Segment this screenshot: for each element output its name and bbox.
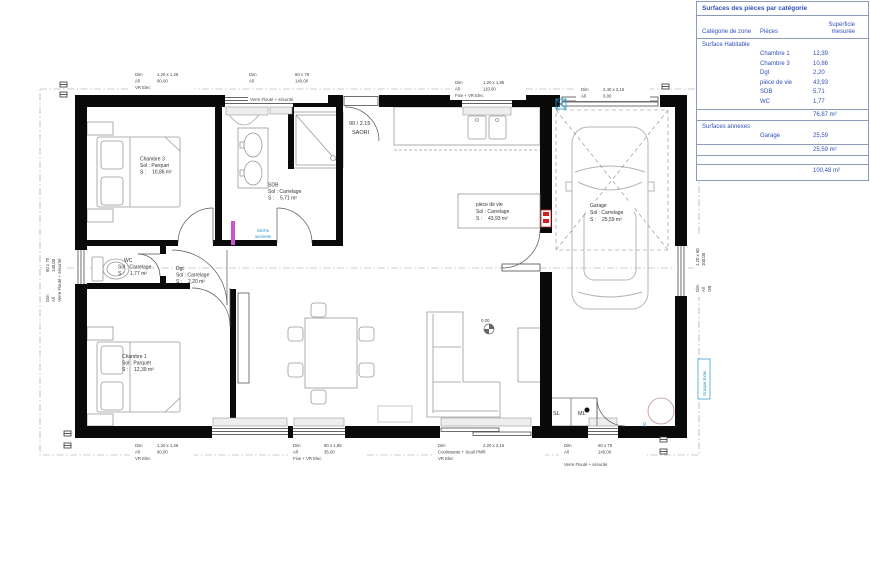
door-chambre1 xyxy=(192,288,230,326)
ann-t2-all: All xyxy=(249,79,254,84)
ann-b4-dimv: 60 x 75 xyxy=(598,443,613,448)
ann-b3-note: Coulissante + Seuil PMR xyxy=(438,450,486,455)
table-row: Chambre 112,39 xyxy=(697,50,868,60)
row-value: 1,77 xyxy=(810,98,868,108)
room-garage-floor: Sol : Carrelage xyxy=(590,210,624,216)
surface-table-header: Catégorie de zone Pièces Superficiemesur… xyxy=(697,16,868,39)
ann-t3-dimv: 1,20 x 1,85 xyxy=(483,80,505,85)
section-annexes: Surfaces annexes xyxy=(697,121,868,132)
ann-r1-allv: 100,00 xyxy=(701,252,706,266)
ann-t1-note: VR Elec xyxy=(135,85,151,90)
ann-t2-note: Verre Flouté + sécurité xyxy=(250,97,294,102)
col-zone: Catégorie de zone xyxy=(702,29,760,35)
ann-b3-dim: Dim xyxy=(438,443,446,448)
ann-t2-dimv: 60 x 75 xyxy=(295,72,310,77)
table-row: Dgt2,20 xyxy=(697,69,868,79)
ann-b2-dimv: 90 x 1,85 xyxy=(324,443,342,448)
ann-b1-dimv: 1,20 x 1,25 xyxy=(157,443,179,448)
grand-total: 100,48 m² xyxy=(697,164,868,177)
water-heater-icon xyxy=(648,398,674,424)
section-habitable: Surface Habitable xyxy=(697,39,868,50)
row-value: 2,20 xyxy=(810,69,868,79)
ann-b4-dim: Dim xyxy=(564,443,572,448)
ann-t2-allv: 140,00 xyxy=(295,79,309,84)
ann-r1-dimv: 1,20 x 60 xyxy=(695,248,700,266)
ann-t3-all: All xyxy=(455,87,460,92)
row-piece: Chambre 3 xyxy=(755,60,810,70)
room-sdb-name: SDB xyxy=(268,183,279,189)
room-chambre3-floor: Sol : Parquet xyxy=(140,163,170,169)
ann-l1-dim: Dim xyxy=(45,294,50,302)
room-pdv-name: pièce de vie xyxy=(476,202,503,208)
ann-b3-note2: VR Elec xyxy=(438,456,454,461)
ann-b2-all: All xyxy=(293,450,298,455)
ann-t1-all: All xyxy=(135,79,140,84)
room-sdb-floor: Sol : Carrelage xyxy=(268,189,302,195)
room-wc-area-label: S : xyxy=(118,271,124,277)
ann-t4-dimv: 2,40 x 2,15 xyxy=(603,87,625,92)
room-pdv-area-label: S : xyxy=(476,216,482,222)
tv-cabinet-icon xyxy=(518,328,542,382)
surface-table-title: Surfaces des pièces par catégorie xyxy=(697,2,868,16)
sliding-panel-icon xyxy=(238,293,249,383)
ann-t4-allv: 0,00 xyxy=(603,94,612,99)
ann-t2-dim: Dim xyxy=(249,72,257,77)
room-chambre3-area-value: 10,86 m² xyxy=(152,170,172,176)
col-superficie-line2: mesurée xyxy=(832,29,855,35)
door-garage-living xyxy=(502,230,540,271)
towel-dryer-label-2: serviette xyxy=(255,234,272,239)
room-dgt-area-value: 2,20 m² xyxy=(188,279,205,285)
doormat-icon xyxy=(378,406,412,422)
ann-b1-dim: Dim xyxy=(135,443,143,448)
entry-door-brand: SAORI xyxy=(352,130,370,136)
ann-b1-all: All xyxy=(135,450,140,455)
sl-label: SL xyxy=(553,411,560,417)
floorplan-page: { "surface_table": { "title": "Surfaces … xyxy=(0,0,870,570)
level-label: 0,00 xyxy=(481,318,490,323)
table-row: WC1,77 xyxy=(697,98,868,108)
door-chambre3 xyxy=(178,208,213,243)
annexes-total: 25,59 m² xyxy=(697,144,868,156)
col-superficie: Superficiemesurée xyxy=(810,22,865,35)
groupe-ext-label: Groupe Exter xyxy=(702,370,707,396)
ann-b4-note: Verre Flouté + sécurité xyxy=(564,462,608,467)
room-pdv-area-value: 43,93 m² xyxy=(488,216,508,222)
row-value: 5,71 xyxy=(810,88,868,98)
table-row: Chambre 310,86 xyxy=(697,60,868,70)
row-value: 25,59 xyxy=(810,132,868,142)
ann-t4-dim: Dim xyxy=(581,87,589,92)
row-value: 10,86 xyxy=(810,60,868,70)
room-dgt-name: Dgt xyxy=(176,266,184,272)
row-value: 43,93 xyxy=(810,79,868,89)
table-row: pièce de vie43,93 xyxy=(697,79,868,89)
room-wc-floor: Sol : Carrelage xyxy=(118,265,152,271)
dim-20-label: 20 xyxy=(642,422,647,427)
ann-t3-note: Fixe + VR Elec xyxy=(455,93,484,98)
ml-label: ML xyxy=(578,411,586,417)
ann-r1-dim: Dim xyxy=(695,284,700,292)
ann-t3-dim: Dim xyxy=(455,80,463,85)
col-superficie-line1: Superficie xyxy=(828,22,855,28)
shower-icon xyxy=(293,112,343,168)
ann-b2-allv: 35,00 xyxy=(324,450,335,455)
room-chambre1-area-value: 12,39 m² xyxy=(134,367,154,373)
ann-b2-dim: Dim xyxy=(293,443,301,448)
ann-t1-dim: Dim xyxy=(135,72,143,77)
room-garage-area-label: S : xyxy=(590,217,596,223)
bed-icon xyxy=(87,110,262,222)
room-sdb-area-value: 5,71 m² xyxy=(280,196,297,202)
room-chambre1-area-label: S : xyxy=(122,367,128,373)
entry-door-size: 90 / 2.15 xyxy=(349,121,370,127)
ann-r1-note: OB xyxy=(707,286,712,292)
row-piece: SDB xyxy=(755,88,810,98)
row-piece: pièce de vie xyxy=(755,79,810,89)
ann-b2-note: Fixe + VR Elec xyxy=(293,456,322,461)
ann-b3-dimv: 2,20 x 2,15 xyxy=(483,443,505,448)
ann-r1-all: All xyxy=(701,287,706,292)
row-piece: Chambre 1 xyxy=(755,50,810,60)
room-wc-name: WC xyxy=(124,258,133,264)
radiator-icon xyxy=(231,221,235,245)
ann-l1-all: All xyxy=(51,297,56,302)
ann-b4-all: All xyxy=(564,450,569,455)
room-pdv-floor: Sol : Carrelage xyxy=(476,209,510,215)
garage-door-swing-lines xyxy=(556,110,668,250)
row-piece: Dgt xyxy=(755,69,810,79)
room-wc-area-value: 1,77 m² xyxy=(130,271,147,277)
room-chambre3-area-label: S : xyxy=(140,170,146,176)
ann-t1-dimv: 1,20 x 1,25 xyxy=(157,72,179,77)
ann-l1-dimv: 60 x 75 xyxy=(45,257,50,272)
towel-dryer-label-1: Sèche xyxy=(257,228,270,233)
room-chambre1-floor: Sol : Parquet xyxy=(122,361,152,367)
room-dgt-area-label: S : xyxy=(176,279,182,285)
room-garage-name: Garage xyxy=(590,203,607,209)
vanity-sinks-icon xyxy=(238,128,268,188)
electrical-panel-icon xyxy=(541,210,551,227)
table-row: SDB5,71 xyxy=(697,88,868,98)
dining-table-icon xyxy=(288,303,374,404)
col-pieces: Pièces xyxy=(760,29,810,35)
row-piece: WC xyxy=(755,98,810,108)
room-labels: Chambre 3 Sol : Parquet S : 10,86 m² SDB… xyxy=(118,121,707,427)
room-chambre3-name: Chambre 3 xyxy=(140,157,165,163)
ann-b1-note: VR Elec xyxy=(135,456,151,461)
row-piece: Garage xyxy=(755,132,810,142)
surface-table: Surfaces des pièces par catégorie Catégo… xyxy=(696,1,869,181)
ann-l1-allv: 140,00 xyxy=(51,258,56,272)
ann-t3-allv: 110,00 xyxy=(483,87,496,92)
ann-b1-allv: 90,00 xyxy=(157,450,168,455)
room-chambre1-name: Chambre 1 xyxy=(122,354,147,360)
room-garage-area-value: 25,59 m² xyxy=(602,217,622,223)
door-sdb xyxy=(277,208,312,243)
room-sdb-area-label: S : xyxy=(268,196,274,202)
ann-b4-allv: 140,00 xyxy=(598,450,612,455)
ann-t1-allv: 90,00 xyxy=(157,79,168,84)
room-dgt-floor: Sol : Carrelage xyxy=(176,273,210,279)
level-marker-icon xyxy=(484,324,494,334)
ann-t4-all: All xyxy=(581,94,586,99)
table-row: Garage25,59 xyxy=(697,132,868,142)
habitable-total: 76,87 m² xyxy=(697,109,868,121)
row-value: 12,39 xyxy=(810,50,868,60)
ann-l1-note: Verre Flouté + sécurité xyxy=(57,258,62,302)
